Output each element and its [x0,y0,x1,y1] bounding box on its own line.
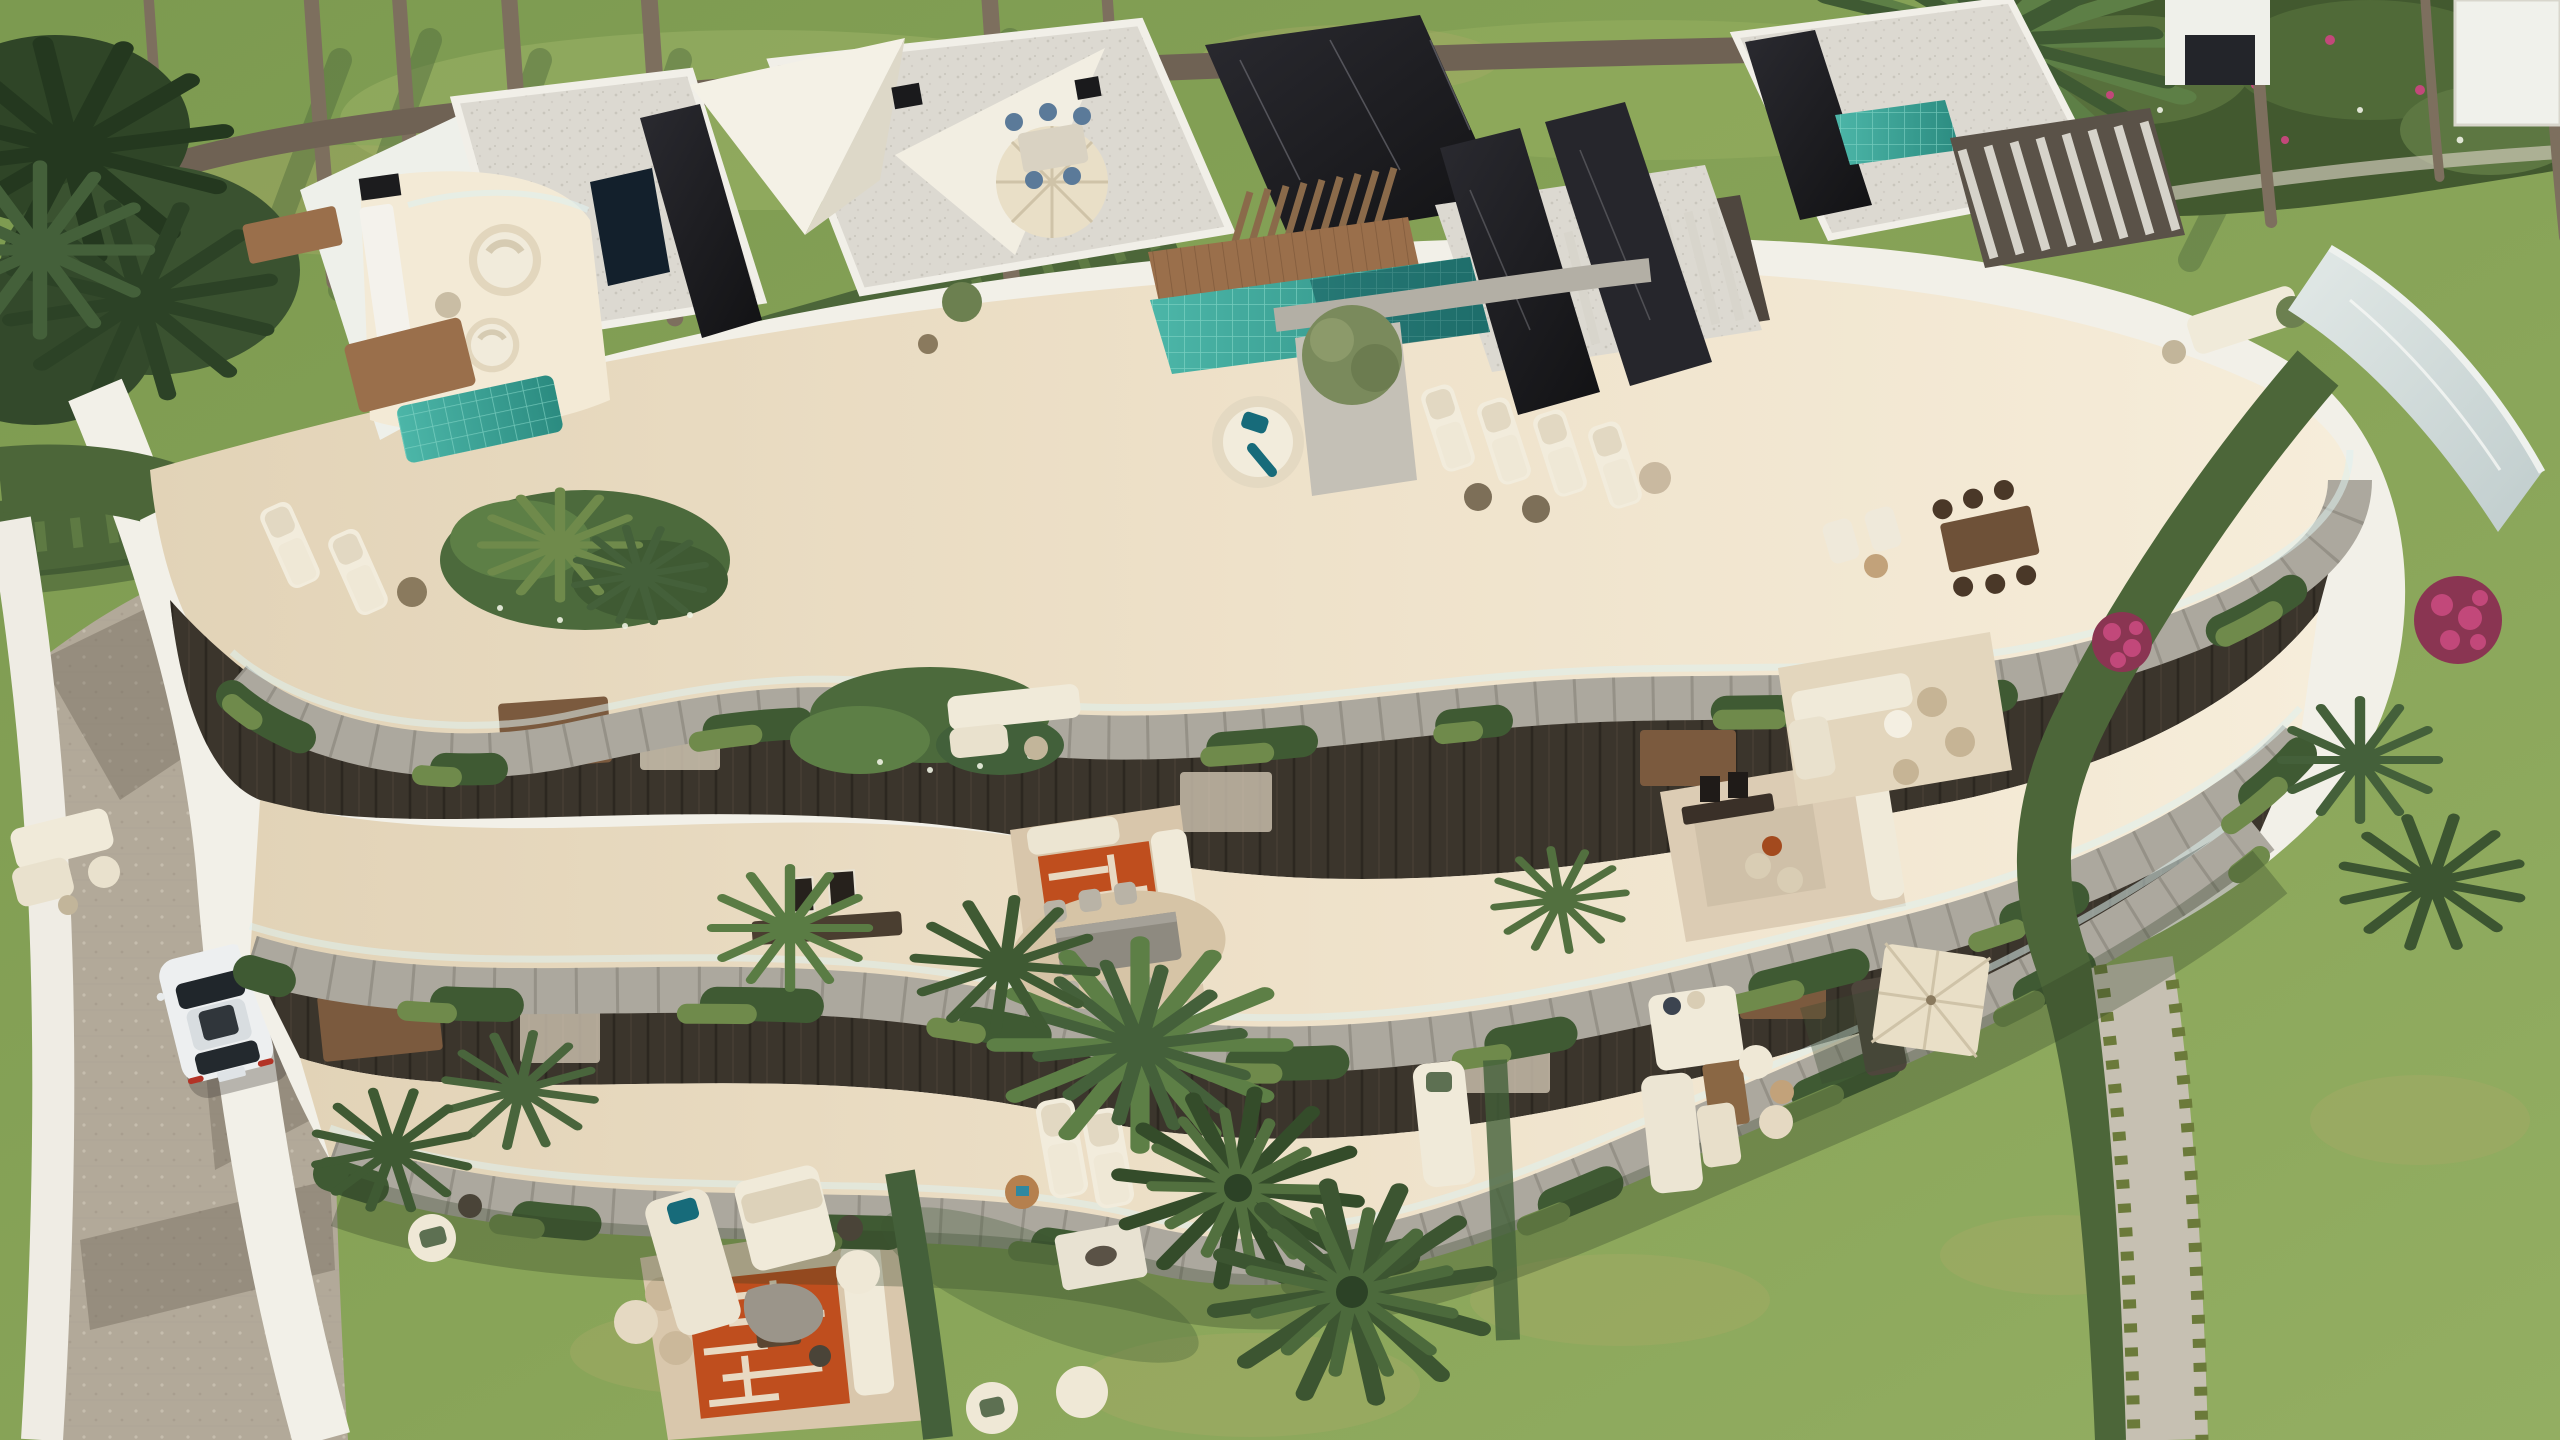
wicker-chair [1917,687,1947,717]
wall-art [1700,776,1720,802]
side-table [435,292,461,318]
wicker-chair [1639,462,1671,494]
neighbor-structure [2455,0,2560,125]
ottoman [837,1215,863,1241]
armchair [1759,1105,1793,1139]
armchair [836,1250,880,1294]
olive-tree-planter [1295,305,1417,496]
side-table [1762,836,1782,856]
wood-slat-wall [1640,730,1736,786]
gravel-path [2132,962,2167,1440]
garden-hedge-row [1495,1060,1508,1340]
ottoman [1522,495,1550,523]
chimney-cap [1074,76,1101,100]
coffee-table [1024,736,1048,760]
wicker-chair [1893,759,1919,785]
armchair [88,856,120,888]
aerial-architectural-render: Aerial 3D render of a curved modern terr… [0,0,2560,1440]
potted-plant [942,282,982,322]
armchair [1777,867,1803,893]
armchair [1745,853,1771,879]
armchair [1739,1045,1773,1079]
teal-daybed [1212,396,1304,488]
cushion [1663,997,1681,1015]
side-table [1864,554,1888,578]
cushion [1687,991,1705,1009]
render-canvas: Aerial 3D render of a curved modern terr… [0,0,2560,1440]
curtain [1180,772,1272,832]
ottoman [458,1194,482,1218]
ottoman [397,577,427,607]
round-daybed [465,318,520,373]
garden-parasol [1872,943,1991,1057]
wall-art [1728,772,1748,798]
wicker-chair [1945,727,1975,757]
ottoman [1464,483,1492,511]
book [1016,1186,1029,1196]
armchair [614,1300,658,1344]
neighbor-roof-box [2185,35,2255,85]
side-table [58,895,78,915]
armchair [1056,1366,1108,1418]
coffee-table [2162,340,2186,364]
coffee-table [1884,710,1912,738]
stone-coffee-table [744,1283,823,1342]
side-table [1770,1080,1794,1104]
pot [918,334,938,354]
wicker-chair [659,1331,693,1365]
ottoman [809,1345,831,1367]
green-cushion [1426,1072,1452,1092]
round-daybed [469,224,541,296]
